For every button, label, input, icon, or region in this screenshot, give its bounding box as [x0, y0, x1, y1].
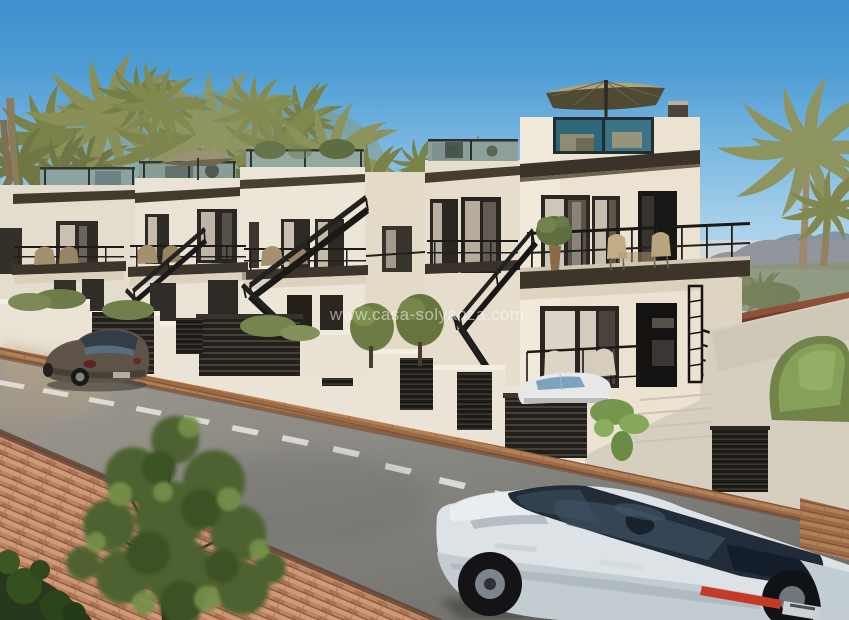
svg-text:www.casa-solyanza.com: www.casa-solyanza.com [329, 305, 525, 324]
